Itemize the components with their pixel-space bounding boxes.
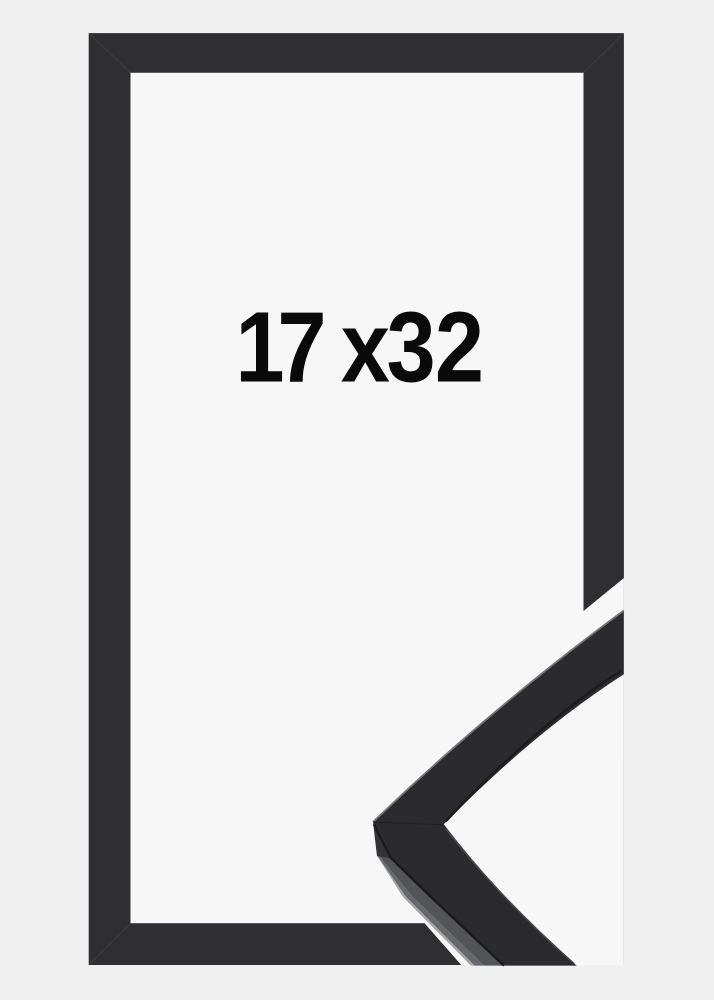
svg-text:7: 7 [277, 291, 326, 402]
svg-text:2: 2 [435, 291, 484, 402]
svg-text:x: x [341, 291, 390, 402]
svg-text:3: 3 [387, 291, 436, 402]
